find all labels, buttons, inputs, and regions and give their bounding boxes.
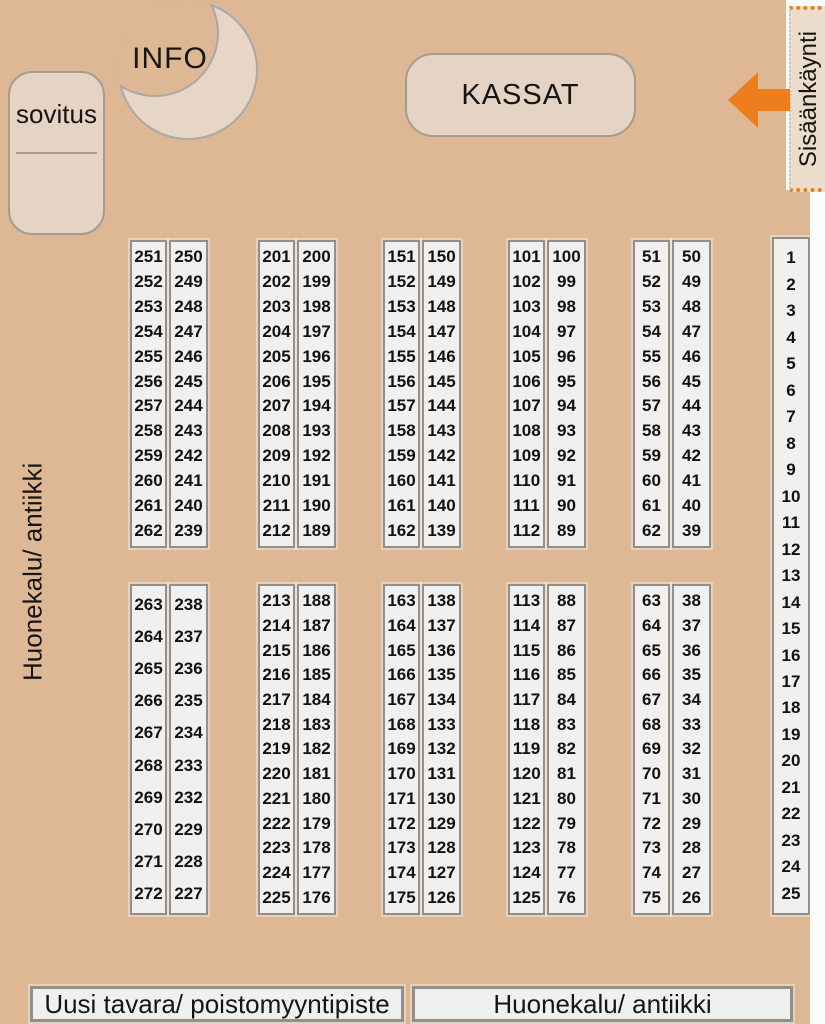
stall-number: 118 [510, 712, 543, 737]
stall-number: 131 [424, 762, 459, 787]
stall-number: 43 [674, 419, 709, 444]
stall-number: 84 [549, 688, 584, 713]
stall-number: 195 [299, 369, 334, 394]
stall-number: 150 [424, 245, 459, 270]
stall-number: 65 [635, 638, 668, 663]
stall-number: 243 [171, 419, 206, 444]
stall-number: 260 [132, 468, 165, 493]
stall-number: 5 [774, 351, 808, 377]
stall-number: 122 [510, 811, 543, 836]
stall-number: 198 [299, 295, 334, 320]
stall-number: 56 [635, 369, 668, 394]
stall-number: 263 [132, 589, 165, 621]
stall-number: 35 [674, 663, 709, 688]
stall-number: 151 [385, 245, 418, 270]
stall-number: 90 [549, 493, 584, 518]
stall-number: 96 [549, 344, 584, 369]
stall-number: 40 [674, 493, 709, 518]
stall-number: 180 [299, 787, 334, 812]
stall-number: 29 [674, 811, 709, 836]
stall-number: 19 [774, 722, 808, 748]
section-label-furniture-antique: Huonekalu/ antiikki [412, 986, 793, 1022]
stall-number: 2 [774, 271, 808, 297]
stall-number: 11 [774, 510, 808, 536]
stall-number: 20 [774, 748, 808, 774]
stall-number: 251 [132, 245, 165, 270]
stall-number: 224 [260, 861, 293, 886]
stall-number: 16 [774, 642, 808, 668]
stall-number: 202 [260, 270, 293, 295]
stall-number: 211 [260, 493, 293, 518]
stall-number: 105 [510, 344, 543, 369]
entrance-arrow-icon [725, 69, 791, 131]
stall-number: 232 [171, 782, 206, 814]
fitting-room-box: sovitus [8, 71, 105, 235]
stall-number: 60 [635, 468, 668, 493]
stall-number: 210 [260, 468, 293, 493]
stall-block-63-26: 63646566676869707172737475 3837363534333… [633, 584, 711, 915]
stall-number: 41 [674, 468, 709, 493]
stall-number: 204 [260, 319, 293, 344]
stall-number: 201 [260, 245, 293, 270]
stall-number: 234 [171, 717, 206, 749]
stall-number: 136 [424, 638, 459, 663]
stall-number: 218 [260, 712, 293, 737]
stall-number: 59 [635, 444, 668, 469]
stall-number: 144 [424, 394, 459, 419]
stall-number: 98 [549, 295, 584, 320]
stall-strip: 213214215216217218219220221222223224225 [258, 584, 295, 915]
stall-strip: 251252253254255256257258259260261262 [130, 240, 167, 548]
stall-number: 102 [510, 270, 543, 295]
stall-number: 36 [674, 638, 709, 663]
stall-number: 88 [549, 589, 584, 614]
stall-number: 95 [549, 369, 584, 394]
stall-strip: 515253545556575859606162 [633, 240, 670, 548]
stall-number: 160 [385, 468, 418, 493]
stall-number: 52 [635, 270, 668, 295]
stall-number: 4 [774, 324, 808, 350]
stall-number: 64 [635, 614, 668, 639]
stall-number: 254 [132, 319, 165, 344]
stall-number: 31 [674, 762, 709, 787]
stall-number: 82 [549, 737, 584, 762]
stall-number: 206 [260, 369, 293, 394]
stall-number: 93 [549, 419, 584, 444]
stall-number: 255 [132, 344, 165, 369]
stall-number: 24 [774, 854, 808, 880]
stall-number: 164 [385, 614, 418, 639]
stall-number: 33 [674, 712, 709, 737]
stall-number: 72 [635, 811, 668, 836]
stall-block-151-139: 151152153154155156157158159160161162 150… [383, 240, 461, 548]
stall-number: 110 [510, 468, 543, 493]
stall-number: 173 [385, 836, 418, 861]
stall-number: 112 [510, 518, 543, 543]
stall-number: 168 [385, 712, 418, 737]
stall-number: 208 [260, 419, 293, 444]
stall-number: 268 [132, 749, 165, 781]
stall-number: 30 [674, 787, 709, 812]
stall-number: 137 [424, 614, 459, 639]
stall-number: 69 [635, 737, 668, 762]
stall-number: 149 [424, 270, 459, 295]
stall-strip: 504948474645444342414039 [672, 240, 711, 548]
stall-number: 127 [424, 861, 459, 886]
stall-strip: 38373635343332313029282726 [672, 584, 711, 915]
stall-number: 269 [132, 782, 165, 814]
stall-number: 14 [774, 589, 808, 615]
stall-strip: 1009998979695949392919089 [547, 240, 586, 548]
stall-number: 92 [549, 444, 584, 469]
stall-number: 177 [299, 861, 334, 886]
stall-number: 34 [674, 688, 709, 713]
stall-block-213-176: 213214215216217218219220221222223224225 … [258, 584, 336, 915]
stall-number: 45 [674, 369, 709, 394]
stall-number: 240 [171, 493, 206, 518]
stall-strip-1-25: 1234567891011121314151617181920212223242… [772, 237, 810, 915]
stall-number: 18 [774, 695, 808, 721]
stall-number: 171 [385, 787, 418, 812]
stall-number: 99 [549, 270, 584, 295]
stall-number: 87 [549, 614, 584, 639]
stall-number: 79 [549, 811, 584, 836]
stall-number: 62 [635, 518, 668, 543]
stall-number: 78 [549, 836, 584, 861]
stall-number: 123 [510, 836, 543, 861]
stall-number: 156 [385, 369, 418, 394]
stall-number: 248 [171, 295, 206, 320]
stall-number: 271 [132, 846, 165, 878]
stall-number: 119 [510, 737, 543, 762]
stall-strip: 200199198197196195194193192191190189 [297, 240, 336, 548]
stall-number: 49 [674, 270, 709, 295]
stall-number: 140 [424, 493, 459, 518]
stall-number: 129 [424, 811, 459, 836]
stall-number: 229 [171, 814, 206, 846]
stall-number: 244 [171, 394, 206, 419]
stall-number: 245 [171, 369, 206, 394]
stall-number: 158 [385, 419, 418, 444]
stall-number: 228 [171, 846, 206, 878]
stall-number: 157 [385, 394, 418, 419]
stall-number: 182 [299, 737, 334, 762]
stall-number: 63 [635, 589, 668, 614]
stall-number: 25 [774, 881, 808, 907]
stall-number: 58 [635, 419, 668, 444]
stall-number: 89 [549, 518, 584, 543]
stall-number: 199 [299, 270, 334, 295]
stall-number: 172 [385, 811, 418, 836]
stall-number: 170 [385, 762, 418, 787]
stall-number: 272 [132, 878, 165, 910]
stall-number: 76 [549, 885, 584, 910]
info-label: INFO [130, 42, 210, 76]
stall-number: 166 [385, 663, 418, 688]
stall-number: 27 [674, 861, 709, 886]
stall-number: 270 [132, 814, 165, 846]
stall-number: 179 [299, 811, 334, 836]
stall-number: 207 [260, 394, 293, 419]
stall-number: 134 [424, 688, 459, 713]
stall-number: 187 [299, 614, 334, 639]
stall-number: 246 [171, 344, 206, 369]
stall-number: 249 [171, 270, 206, 295]
stall-strip: 113114115116117118119120121122123124125 [508, 584, 545, 915]
stall-strip: 150149148147146145144143142141140139 [422, 240, 461, 548]
stall-number: 50 [674, 245, 709, 270]
stall-strip: 250249248247246245244243242241240239 [169, 240, 208, 548]
stall-number: 71 [635, 787, 668, 812]
entrance-box: Sisäänkäynti [789, 6, 825, 192]
stall-number: 194 [299, 394, 334, 419]
stall-block-263-227: 263264265266267268269270271272 238237236… [130, 584, 208, 915]
stall-number: 44 [674, 394, 709, 419]
stall-number: 213 [260, 589, 293, 614]
stall-number: 236 [171, 653, 206, 685]
stall-number: 235 [171, 685, 206, 717]
stall-number: 70 [635, 762, 668, 787]
stall-number: 191 [299, 468, 334, 493]
stall-number: 239 [171, 518, 206, 543]
stall-number: 132 [424, 737, 459, 762]
stall-number: 100 [549, 245, 584, 270]
entrance-label: Sisäänkäynti [795, 31, 823, 167]
section-label-new-goods: Uusi tavara/ poistomyyntipiste [30, 986, 404, 1022]
stall-number: 165 [385, 638, 418, 663]
stall-number: 152 [385, 270, 418, 295]
stall-number: 225 [260, 885, 293, 910]
stall-number: 259 [132, 444, 165, 469]
stall-number: 143 [424, 419, 459, 444]
stall-number: 167 [385, 688, 418, 713]
stall-number: 183 [299, 712, 334, 737]
stall-number: 7 [774, 404, 808, 430]
fitting-room-label: sovitus [10, 99, 103, 130]
stall-number: 175 [385, 885, 418, 910]
stall-number: 186 [299, 638, 334, 663]
stall-number: 85 [549, 663, 584, 688]
stall-number: 247 [171, 319, 206, 344]
stall-number: 1 [774, 245, 808, 271]
stall-number: 215 [260, 638, 293, 663]
stall-number: 212 [260, 518, 293, 543]
stall-number: 258 [132, 419, 165, 444]
stall-number: 159 [385, 444, 418, 469]
stall-number: 80 [549, 787, 584, 812]
stall-number: 17 [774, 669, 808, 695]
stall-number: 111 [510, 493, 543, 518]
checkout-box: KASSAT [405, 53, 636, 137]
stall-number: 26 [674, 885, 709, 910]
stall-number: 133 [424, 712, 459, 737]
stall-number: 252 [132, 270, 165, 295]
stall-number: 9 [774, 457, 808, 483]
stall-number: 220 [260, 762, 293, 787]
stall-number: 75 [635, 885, 668, 910]
stall-number: 266 [132, 685, 165, 717]
stall-number: 8 [774, 430, 808, 456]
stall-number: 61 [635, 493, 668, 518]
stall-number: 196 [299, 344, 334, 369]
floor-map: sovitus INFO KASSAT Huonekalu/ antiikki … [0, 0, 810, 1024]
stall-number: 155 [385, 344, 418, 369]
stall-number: 57 [635, 394, 668, 419]
checkout-label: KASSAT [461, 79, 579, 112]
stall-number: 124 [510, 861, 543, 886]
stall-number: 267 [132, 717, 165, 749]
stall-number: 241 [171, 468, 206, 493]
stall-number: 197 [299, 319, 334, 344]
stall-number: 128 [424, 836, 459, 861]
stall-number: 130 [424, 787, 459, 812]
stall-strip: 151152153154155156157158159160161162 [383, 240, 420, 548]
left-area-label: Huonekalu/ antiikki [16, 452, 50, 692]
stall-strip: 138137136135134133132131130129128127126 [422, 584, 461, 915]
stall-number: 219 [260, 737, 293, 762]
stall-number: 256 [132, 369, 165, 394]
stall-number: 221 [260, 787, 293, 812]
stall-number: 53 [635, 295, 668, 320]
stall-number: 192 [299, 444, 334, 469]
stall-number: 3 [774, 298, 808, 324]
stall-block-101-89: 101102103104105106107108109110111112 100… [508, 240, 586, 548]
stall-number: 205 [260, 344, 293, 369]
stall-number: 262 [132, 518, 165, 543]
stall-strip: 188187186185184183182181180179178177176 [297, 584, 336, 915]
stall-number: 66 [635, 663, 668, 688]
stall-number: 48 [674, 295, 709, 320]
stall-number: 216 [260, 663, 293, 688]
stall-number: 116 [510, 663, 543, 688]
stall-number: 190 [299, 493, 334, 518]
stall-number: 162 [385, 518, 418, 543]
stall-number: 68 [635, 712, 668, 737]
stall-number: 46 [674, 344, 709, 369]
stall-number: 184 [299, 688, 334, 713]
stall-number: 67 [635, 688, 668, 713]
stall-number: 10 [774, 483, 808, 509]
stall-number: 169 [385, 737, 418, 762]
stall-number: 264 [132, 621, 165, 653]
stall-number: 193 [299, 419, 334, 444]
stall-number: 22 [774, 801, 808, 827]
stall-number: 117 [510, 688, 543, 713]
stall-number: 104 [510, 319, 543, 344]
stall-number: 21 [774, 775, 808, 801]
stall-number: 23 [774, 828, 808, 854]
stall-number: 135 [424, 663, 459, 688]
stall-number: 54 [635, 319, 668, 344]
stall-number: 233 [171, 749, 206, 781]
stall-number: 113 [510, 589, 543, 614]
stall-number: 147 [424, 319, 459, 344]
stall-number: 238 [171, 589, 206, 621]
stall-number: 153 [385, 295, 418, 320]
stall-number: 174 [385, 861, 418, 886]
stall-strip: 238237236235234233232229228227 [169, 584, 208, 915]
stall-number: 209 [260, 444, 293, 469]
stall-number: 185 [299, 663, 334, 688]
stall-number: 13 [774, 563, 808, 589]
stall-strip: 201202203204205206207208209210211212 [258, 240, 295, 548]
stall-number: 120 [510, 762, 543, 787]
stall-block-51-39: 515253545556575859606162 504948474645444… [633, 240, 711, 548]
stall-number: 253 [132, 295, 165, 320]
stall-number: 15 [774, 616, 808, 642]
stall-number: 250 [171, 245, 206, 270]
stall-block-113-76: 113114115116117118119120121122123124125 … [508, 584, 586, 915]
stall-number: 37 [674, 614, 709, 639]
stall-number: 126 [424, 885, 459, 910]
stall-number: 73 [635, 836, 668, 861]
stall-number: 189 [299, 518, 334, 543]
stall-number: 200 [299, 245, 334, 270]
stall-number: 109 [510, 444, 543, 469]
stall-number: 47 [674, 319, 709, 344]
stall-number: 178 [299, 836, 334, 861]
stall-number: 138 [424, 589, 459, 614]
stall-strip: 101102103104105106107108109110111112 [508, 240, 545, 548]
stall-block-201-189: 201202203204205206207208209210211212 200… [258, 240, 336, 548]
stall-number: 145 [424, 369, 459, 394]
stall-number: 77 [549, 861, 584, 886]
stall-number: 142 [424, 444, 459, 469]
stall-block-251-239: 251252253254255256257258259260261262 250… [130, 240, 208, 548]
stall-strip: 263264265266267268269270271272 [130, 584, 167, 915]
fitting-room-divider [16, 152, 97, 154]
stall-number: 148 [424, 295, 459, 320]
stall-number: 51 [635, 245, 668, 270]
stall-number: 222 [260, 811, 293, 836]
stall-block-163-126: 163164165166167168169170171172173174175 … [383, 584, 461, 915]
stall-number: 203 [260, 295, 293, 320]
stall-number: 106 [510, 369, 543, 394]
stall-number: 83 [549, 712, 584, 737]
stall-number: 163 [385, 589, 418, 614]
stall-number: 91 [549, 468, 584, 493]
stall-number: 55 [635, 344, 668, 369]
stall-number: 121 [510, 787, 543, 812]
stall-number: 237 [171, 621, 206, 653]
stall-strip: 88878685848382818079787776 [547, 584, 586, 915]
stall-number: 154 [385, 319, 418, 344]
stall-number: 141 [424, 468, 459, 493]
stall-number: 217 [260, 688, 293, 713]
stall-number: 6 [774, 377, 808, 403]
stall-number: 261 [132, 493, 165, 518]
stall-number: 97 [549, 319, 584, 344]
stall-number: 223 [260, 836, 293, 861]
stall-number: 161 [385, 493, 418, 518]
stall-number: 181 [299, 762, 334, 787]
stall-number: 42 [674, 444, 709, 469]
stall-number: 227 [171, 878, 206, 910]
stall-number: 32 [674, 737, 709, 762]
stall-number: 94 [549, 394, 584, 419]
stall-number: 108 [510, 419, 543, 444]
stall-number: 101 [510, 245, 543, 270]
stall-number: 125 [510, 885, 543, 910]
stall-number: 81 [549, 762, 584, 787]
stall-number: 107 [510, 394, 543, 419]
stall-number: 139 [424, 518, 459, 543]
stall-number: 38 [674, 589, 709, 614]
stall-number: 86 [549, 638, 584, 663]
stall-number: 265 [132, 653, 165, 685]
stall-number: 74 [635, 861, 668, 886]
stall-number: 214 [260, 614, 293, 639]
